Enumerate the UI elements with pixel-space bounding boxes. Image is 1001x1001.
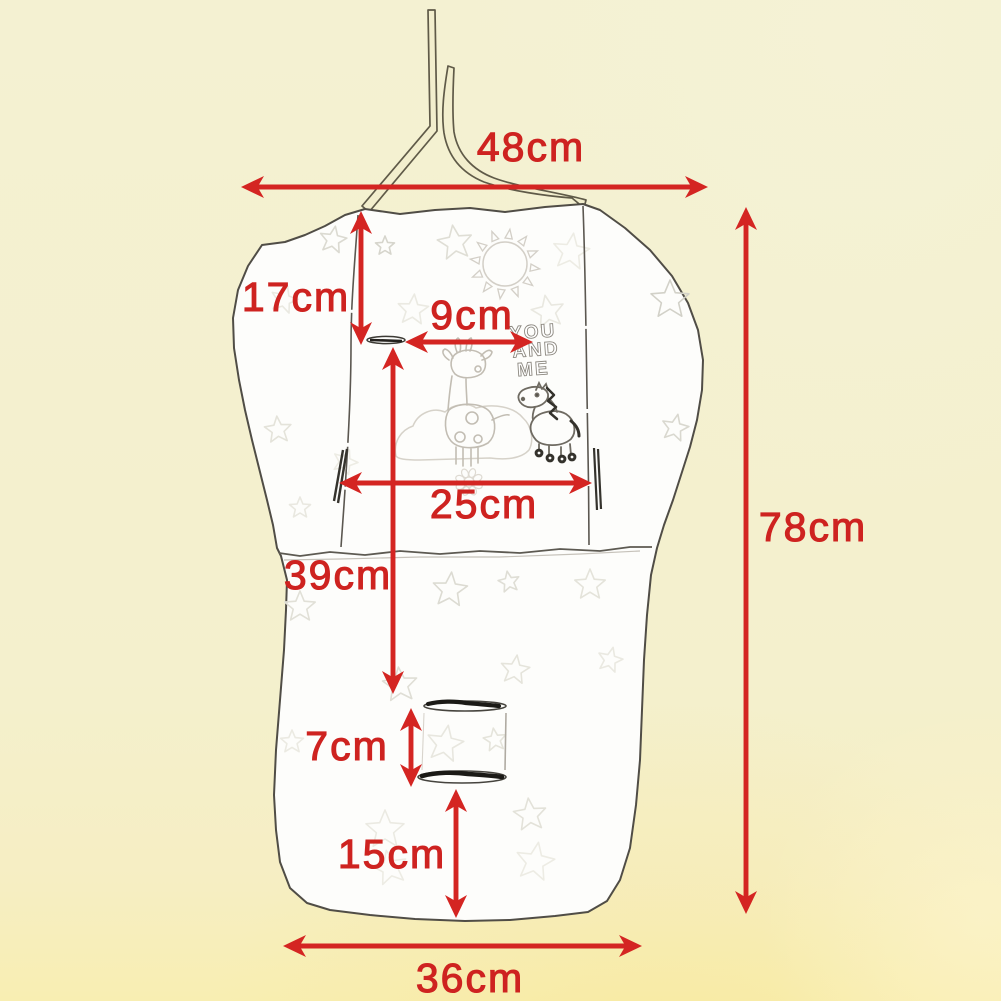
svg-text:78cm: 78cm	[759, 504, 867, 550]
svg-text:ME: ME	[516, 358, 550, 381]
svg-text:25cm: 25cm	[430, 481, 538, 527]
svg-text:15cm: 15cm	[338, 831, 446, 877]
svg-text:7cm: 7cm	[305, 723, 388, 769]
svg-text:39cm: 39cm	[284, 552, 392, 598]
svg-text:48cm: 48cm	[477, 124, 585, 170]
svg-text:36cm: 36cm	[416, 955, 524, 1001]
svg-text:17cm: 17cm	[242, 274, 350, 320]
svg-text:9cm: 9cm	[430, 292, 513, 338]
